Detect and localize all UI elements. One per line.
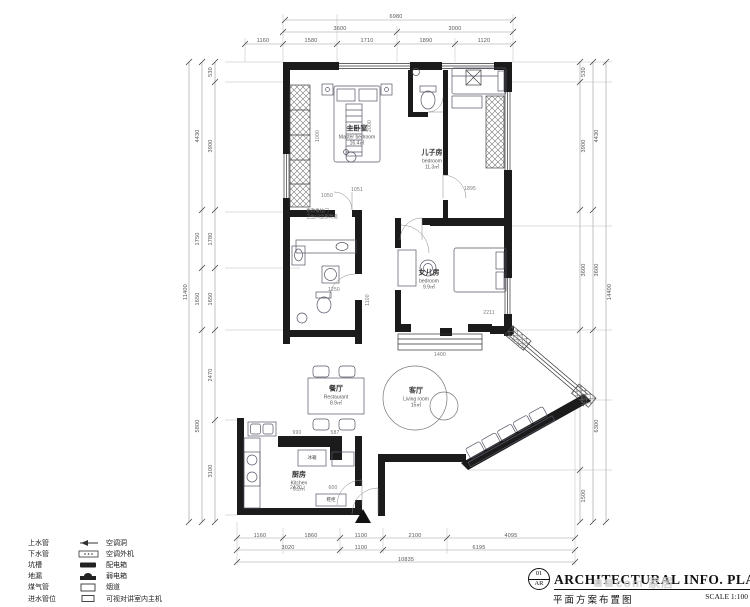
annotation-line2: 卫生间全部改造 <box>306 214 338 220</box>
dim-interior: 600 <box>329 485 338 491</box>
legend-row: 地漏 弱电箱 <box>28 571 213 582</box>
legend-label: 煤气管 <box>28 582 78 592</box>
dim-left: 1650 <box>195 292 201 305</box>
legend: 上水管 空调洞 下水管 空调外机 坑槽 配电箱 地漏 弱电箱 煤气管 烟道 进水… <box>28 537 213 604</box>
legend-label: 坑槽 <box>28 560 78 570</box>
dim-right-total: 14400 <box>607 284 613 300</box>
dim-left: 3100 <box>208 464 214 477</box>
dim-interior: 2211 <box>483 310 495 316</box>
sheet-discipline: AR <box>529 579 549 588</box>
dim-bottom: 1100 <box>355 545 368 551</box>
legend-label: 下水管 <box>28 549 78 559</box>
supply-pipe-icon <box>78 539 106 547</box>
legend-label: 空调外机 <box>106 549 134 559</box>
dim-interior: 1051 <box>351 187 363 193</box>
dim-top: 1160 <box>257 38 270 44</box>
room-kitchen-cn: 厨房 <box>291 471 308 480</box>
floor-plan-sheet: { "title_block": { "sheet_no": "01", "di… <box>0 0 750 607</box>
dim-right: 3600 <box>581 263 587 276</box>
annotation-note: 更改推拉门 卫生间全部改造 <box>306 208 338 220</box>
watermark-logo-icon <box>605 579 613 587</box>
bathroom-top-fixtures <box>413 69 444 113</box>
daughter-bed <box>398 218 506 292</box>
legend-row: 坑槽 配电箱 <box>28 559 213 570</box>
dim-right: 1500 <box>581 489 587 502</box>
dim-left: 2470 <box>208 368 214 381</box>
dim-interior: 1050 <box>321 193 333 199</box>
room-label-kitchen: 厨房 Kitchen 6.2㎡ <box>291 471 308 492</box>
watermark-text: com 家居 <box>616 574 674 591</box>
dim-bottom: 4095 <box>504 533 517 539</box>
dim-left: 5800 <box>195 419 201 432</box>
dim-interior: 1000 <box>315 130 321 142</box>
dim-interior: 1400 <box>434 352 446 358</box>
dim-right: 4430 <box>594 129 600 142</box>
master-bed <box>322 84 392 162</box>
dim-left: 1650 <box>208 292 214 305</box>
dim-bottom: 2100 <box>408 533 421 539</box>
dim-top: 3600 <box>333 26 346 32</box>
room-master-cn: 主卧室 <box>339 125 375 134</box>
dim-top-total: 6980 <box>389 14 402 20</box>
legend-label: 烟道 <box>106 582 120 592</box>
room-label-master: 主卧室 Master bedroom 16.4㎡ <box>339 125 375 146</box>
legend-row: 煤气管 烟道 <box>28 582 213 593</box>
dim-bottom-total: 10835 <box>398 557 414 563</box>
room-son-cn: 儿子房 <box>422 149 443 158</box>
dim-left: 1750 <box>195 232 201 245</box>
legend-label: 进水管位 <box>28 594 78 604</box>
dim-bottom: 1160 <box>254 533 267 539</box>
dim-interior: 1895 <box>464 186 476 192</box>
dim-top: 1890 <box>419 38 432 44</box>
room-label-son: 儿子房 bedroom 11.3㎡ <box>422 149 443 170</box>
room-kitchen-area: 6.2㎡ <box>291 486 308 492</box>
dim-top: 1580 <box>304 38 317 44</box>
pit-icon <box>78 561 106 569</box>
room-dining-cn: 餐厅 <box>324 385 348 394</box>
dim-interior: 1250 <box>328 287 340 293</box>
dim-left: 530 <box>208 67 214 77</box>
sheet-number: 01 <box>529 570 549 578</box>
legend-row: 进水管位 可视对讲室内主机 <box>28 593 213 604</box>
legend-label: 弱电箱 <box>106 571 127 581</box>
inlet-pipe-icon <box>78 594 106 603</box>
living-room-furniture <box>383 366 555 467</box>
fridge-label: 冰箱 <box>308 455 317 461</box>
dim-left: 1780 <box>208 232 214 245</box>
dim-interior: 587 <box>331 430 340 436</box>
dim-top: 3000 <box>448 26 461 32</box>
dim-right: 6300 <box>594 419 600 432</box>
dim-bottom: 3020 <box>281 545 294 551</box>
dim-right: 530 <box>581 67 587 77</box>
legend-label: 地漏 <box>28 571 78 581</box>
dim-left-total: 11400 <box>183 284 189 300</box>
dimension-lines <box>186 14 612 565</box>
room-daughter-area: 9.9㎡ <box>419 284 440 290</box>
drawing-scale: SCALE 1:100 <box>705 592 748 606</box>
dim-left: 3900 <box>208 139 214 152</box>
legend-row: 下水管 空调外机 <box>28 548 213 559</box>
dim-top: 1710 <box>360 38 373 44</box>
room-label-dining: 餐厅 Restaurant 8.9㎡ <box>324 385 348 406</box>
room-son-area: 11.3㎡ <box>422 164 443 170</box>
legend-label: 可视对讲室内主机 <box>106 594 162 604</box>
drawing-title-cn: 平面方案布置图 <box>553 592 634 606</box>
legend-row: 上水管 空调洞 <box>28 537 213 548</box>
room-label-living: 客厅 Living room 15㎡ <box>403 387 429 408</box>
gas-pipe-icon <box>78 583 106 592</box>
bathroom-mid-fixtures <box>292 240 356 323</box>
dim-right: 3900 <box>581 139 587 152</box>
watermark: com 家居 <box>594 574 674 591</box>
room-label-daughter: 女儿房 bedroom 9.9㎡ <box>419 269 440 290</box>
dim-bottom: 1100 <box>355 533 368 539</box>
room-living-area: 15㎡ <box>403 402 429 408</box>
dim-interior: 990 <box>293 430 302 436</box>
floor-drain-icon <box>78 572 106 581</box>
windows-layer <box>284 64 588 400</box>
shoe-cabinet-label: 鞋柜 <box>327 497 336 503</box>
room-dining-area: 8.9㎡ <box>324 400 348 406</box>
dim-bottom: 6195 <box>472 545 485 551</box>
dim-right: 3600 <box>594 263 600 276</box>
legend-label: 上水管 <box>28 538 78 548</box>
watermark-logo-icon <box>594 579 602 587</box>
room-daughter-cn: 女儿房 <box>419 269 440 278</box>
room-master-area: 16.4㎡ <box>339 140 375 146</box>
dim-right: 4800 <box>581 393 587 406</box>
sheet-number-bubble: 01 AR <box>528 568 550 590</box>
legend-label: 空调洞 <box>106 538 127 548</box>
floor-plan-drawing <box>0 0 750 607</box>
drain-pipe-icon <box>78 550 106 558</box>
dim-bottom: 1860 <box>304 533 317 539</box>
room-living-cn: 客厅 <box>403 387 429 396</box>
legend-label: 配电箱 <box>106 560 127 570</box>
dim-left: 4430 <box>195 129 201 142</box>
dim-interior: 1100 <box>365 294 371 306</box>
dim-top: 1120 <box>478 38 491 44</box>
